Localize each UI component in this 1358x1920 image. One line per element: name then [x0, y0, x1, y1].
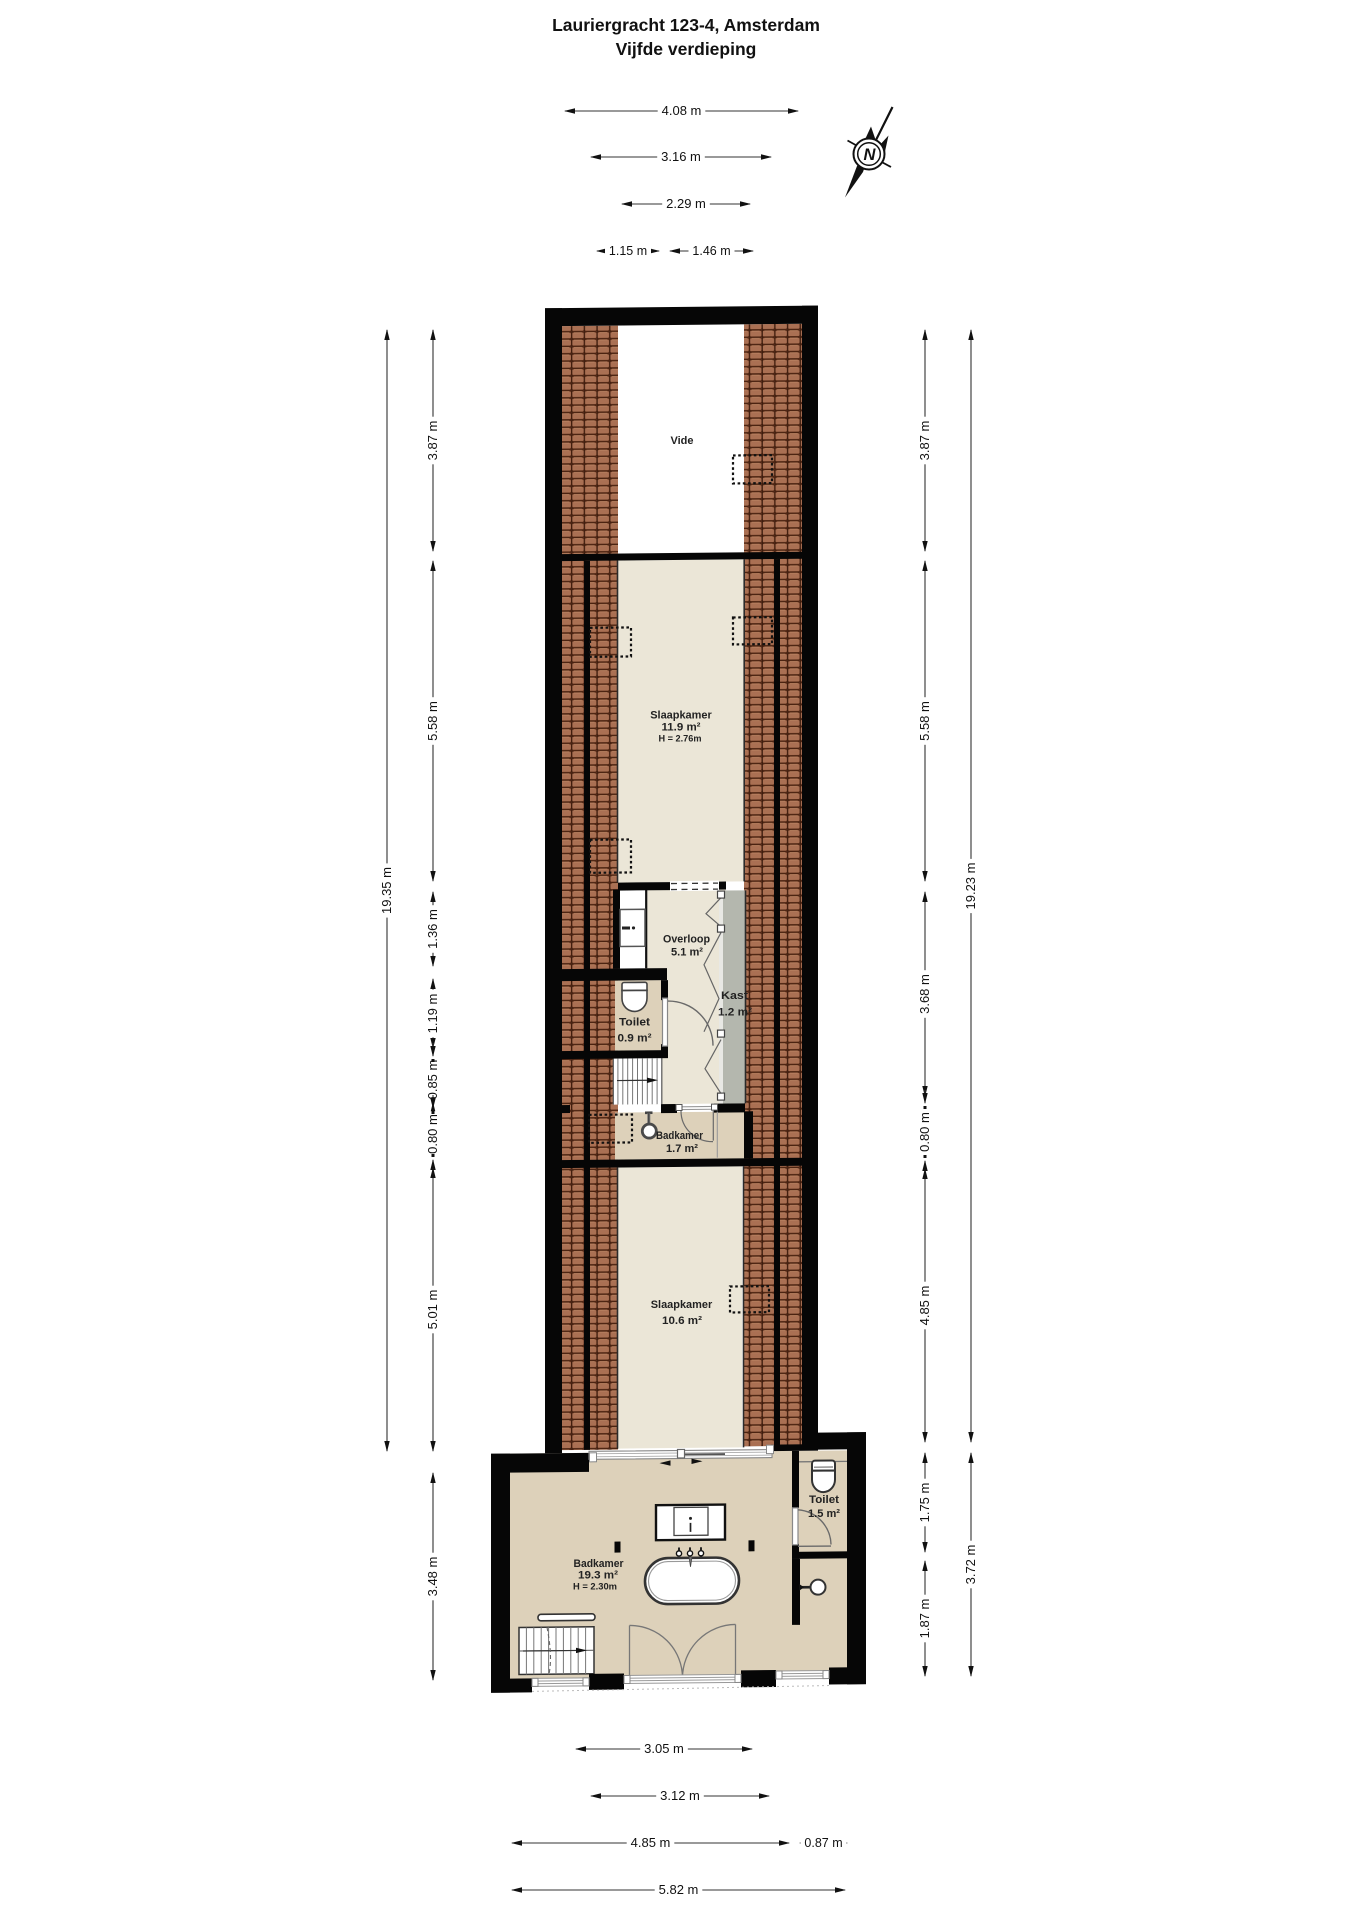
svg-text:H = 2.30m: H = 2.30m	[573, 1582, 617, 1593]
svg-text:19.35 m: 19.35 m	[379, 867, 394, 914]
svg-text:5.58 m: 5.58 m	[917, 701, 932, 741]
svg-text:Slaapkamer: Slaapkamer	[650, 710, 712, 722]
svg-text:Lauriergracht 123-4, Amsterdam: Lauriergracht 123-4, Amsterdam	[552, 15, 820, 35]
svg-text:0.85 m: 0.85 m	[425, 1060, 440, 1100]
svg-text:1.19 m: 1.19 m	[425, 994, 440, 1034]
svg-text:5.82 m: 5.82 m	[659, 1882, 699, 1897]
svg-text:Badkamer: Badkamer	[574, 1558, 625, 1570]
svg-text:0.87 m: 0.87 m	[804, 1836, 842, 1850]
svg-text:5.58 m: 5.58 m	[425, 701, 440, 741]
svg-text:3.48 m: 3.48 m	[425, 1557, 440, 1597]
svg-text:1.75 m: 1.75 m	[917, 1483, 932, 1523]
svg-text:3.16 m: 3.16 m	[661, 149, 701, 164]
svg-text:1.15 m: 1.15 m	[609, 244, 647, 258]
svg-text:Kast: Kast	[721, 990, 748, 1002]
svg-text:11.9 m²: 11.9 m²	[662, 722, 701, 734]
svg-text:1.5 m²: 1.5 m²	[808, 1508, 840, 1520]
svg-text:0.80 m: 0.80 m	[425, 1114, 440, 1154]
svg-text:Slaapkamer: Slaapkamer	[651, 1299, 713, 1311]
svg-text:4.08 m: 4.08 m	[662, 103, 702, 118]
svg-text:10.6 m²: 10.6 m²	[662, 1315, 702, 1327]
svg-text:19.23 m: 19.23 m	[963, 863, 978, 910]
svg-text:3.87 m: 3.87 m	[917, 421, 932, 461]
svg-text:Toilet: Toilet	[809, 1494, 839, 1506]
svg-text:3.72 m: 3.72 m	[963, 1545, 978, 1585]
svg-text:3.87 m: 3.87 m	[425, 421, 440, 461]
svg-text:Vide: Vide	[671, 435, 694, 447]
svg-text:1.2 m²: 1.2 m²	[718, 1007, 752, 1019]
svg-text:5.01 m: 5.01 m	[425, 1290, 440, 1330]
svg-text:N: N	[864, 146, 877, 164]
svg-text:Vijfde verdieping: Vijfde verdieping	[616, 39, 757, 59]
svg-text:1.7 m²: 1.7 m²	[666, 1143, 698, 1155]
svg-text:1.36 m: 1.36 m	[425, 909, 440, 949]
svg-text:5.1 m²: 5.1 m²	[671, 947, 703, 959]
svg-text:3.05 m: 3.05 m	[644, 1741, 684, 1756]
svg-text:3.68 m: 3.68 m	[917, 974, 932, 1014]
svg-text:Overloop: Overloop	[663, 934, 710, 946]
svg-text:H = 2.76m: H = 2.76m	[659, 734, 702, 745]
svg-text:3.12 m: 3.12 m	[660, 1788, 700, 1803]
svg-text:Toilet: Toilet	[619, 1017, 650, 1029]
svg-text:19.3 m²: 19.3 m²	[578, 1570, 618, 1582]
svg-text:1.46 m: 1.46 m	[692, 244, 730, 258]
svg-text:Badkamer: Badkamer	[656, 1130, 704, 1142]
svg-text:2.29 m: 2.29 m	[666, 196, 706, 211]
svg-text:0.9 m²: 0.9 m²	[618, 1033, 652, 1045]
svg-text:4.85 m: 4.85 m	[631, 1835, 671, 1850]
svg-text:4.85 m: 4.85 m	[917, 1286, 932, 1326]
svg-text:0.80 m: 0.80 m	[917, 1112, 932, 1152]
svg-text:1.87 m: 1.87 m	[917, 1599, 932, 1639]
